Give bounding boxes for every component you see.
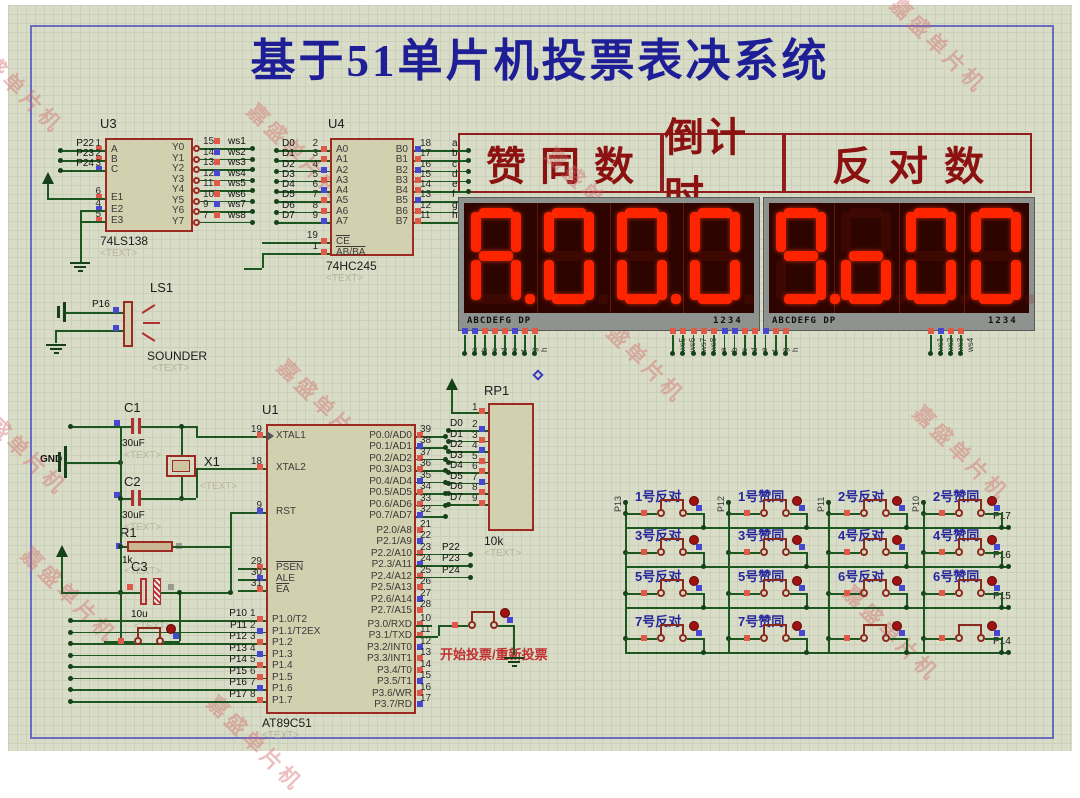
- pin-square[interactable]: [127, 584, 133, 590]
- pin-square[interactable]: [214, 159, 220, 165]
- push-button[interactable]: [958, 624, 982, 634]
- wire: [141, 426, 196, 428]
- pin-number: 1: [300, 241, 318, 253]
- pin-square[interactable]: [479, 500, 485, 506]
- button-contact-icon: [782, 548, 790, 556]
- display-pin-label: h: [791, 348, 800, 352]
- pin-square[interactable]: [670, 328, 676, 334]
- button-contact-icon: [882, 548, 890, 556]
- wire: [828, 638, 844, 640]
- junction-dot: [701, 525, 706, 530]
- seven-seg-segment-f: [690, 212, 700, 252]
- junction-dot: [250, 178, 255, 183]
- pin-square[interactable]: [696, 585, 702, 591]
- pin-square[interactable]: [257, 628, 263, 634]
- pin-name: P1.2: [272, 637, 293, 649]
- wire: [985, 552, 1001, 554]
- seven-seg-segment-d: [784, 294, 818, 304]
- push-button[interactable]: [958, 499, 982, 509]
- wire: [625, 607, 1010, 609]
- wire: [55, 330, 57, 343]
- junction-dot: [670, 351, 675, 356]
- seven-seg-segment-d: [479, 294, 513, 304]
- seven-seg-segment-d: [698, 294, 732, 304]
- digit-separator: [537, 203, 538, 313]
- digit-separator: [610, 203, 611, 313]
- junction-dot: [468, 552, 473, 557]
- junction-dot: [826, 500, 831, 505]
- button-contact-icon: [860, 509, 868, 517]
- wire: [850, 513, 860, 515]
- wire: [728, 513, 744, 515]
- ground-icon: [508, 661, 520, 663]
- button-contact-icon: [977, 548, 985, 556]
- pin-name: XTAL1: [276, 430, 306, 442]
- push-button[interactable]: [660, 624, 684, 634]
- sounder-text: <TEXT>: [152, 363, 189, 375]
- pin-square[interactable]: [479, 447, 485, 453]
- pin-square[interactable]: [214, 138, 220, 144]
- pin-square[interactable]: [994, 630, 1000, 636]
- junction-dot: [274, 148, 279, 153]
- pin-name: C: [111, 164, 118, 176]
- seven-seg-segment-g: [979, 251, 1013, 261]
- pin-square[interactable]: [214, 170, 220, 176]
- pin-square[interactable]: [321, 177, 327, 183]
- seven-seg-segment-g: [479, 251, 513, 261]
- seven-seg-segment-b: [881, 212, 891, 252]
- pin-square[interactable]: [522, 328, 528, 334]
- pin-square[interactable]: [994, 544, 1000, 550]
- junction-dot: [999, 650, 1004, 655]
- push-button[interactable]: [763, 499, 787, 509]
- pin-number: 5: [250, 654, 256, 666]
- pin-square[interactable]: [113, 307, 119, 313]
- wire: [625, 652, 1010, 654]
- chip-text-rp1: <TEXT>: [484, 548, 521, 560]
- invert-bubble-icon: [193, 166, 200, 173]
- ground-icon: [74, 266, 86, 268]
- pin-square[interactable]: [507, 617, 513, 623]
- keypad-col-label: P12: [716, 496, 726, 512]
- button-contact-icon: [657, 634, 665, 642]
- junction-dot: [958, 351, 963, 356]
- wire: [828, 552, 844, 554]
- push-button[interactable]: [863, 538, 887, 548]
- junction-dot: [250, 167, 255, 172]
- wire: [625, 593, 641, 595]
- push-button[interactable]: [763, 579, 787, 589]
- display-legend: 1234: [713, 315, 743, 327]
- junction-dot: [250, 209, 255, 214]
- button-contact-icon: [760, 548, 768, 556]
- wire: [625, 552, 641, 554]
- pin-square[interactable]: [752, 328, 758, 334]
- push-button[interactable]: [863, 579, 887, 589]
- pin-name: P2.1/A9: [340, 536, 412, 548]
- pin-square[interactable]: [696, 544, 702, 550]
- pin-square[interactable]: [691, 328, 697, 334]
- pin-square[interactable]: [257, 586, 263, 592]
- wire: [80, 210, 82, 262]
- pin-name: P0.4/AD4: [340, 476, 412, 488]
- wire-label: D7: [450, 492, 463, 504]
- wire: [890, 513, 906, 515]
- junction-dot: [58, 148, 63, 153]
- pin-square[interactable]: [899, 585, 905, 591]
- wire: [161, 592, 230, 594]
- wire: [790, 593, 806, 595]
- pin-square[interactable]: [173, 633, 179, 639]
- wire: [196, 468, 198, 498]
- junction-dot: [68, 699, 73, 704]
- wire: [647, 593, 657, 595]
- wire: [230, 512, 232, 592]
- pin-square[interactable]: [257, 685, 263, 691]
- pin-square[interactable]: [214, 201, 220, 207]
- wire: [828, 513, 844, 515]
- pin-name: P2.4/A12: [340, 571, 412, 583]
- pin-square[interactable]: [462, 328, 468, 334]
- seven-seg-segment-b: [946, 212, 956, 252]
- junction-dot: [466, 179, 471, 184]
- wire: [728, 638, 744, 640]
- wire: [173, 546, 230, 548]
- chip-rp1[interactable]: [488, 403, 534, 531]
- pin-square[interactable]: [994, 585, 1000, 591]
- pin-square[interactable]: [257, 508, 263, 514]
- pin-square[interactable]: [257, 432, 263, 438]
- seven-seg-segment-f: [971, 212, 981, 252]
- button-contact-icon: [977, 589, 985, 597]
- junction-dot: [711, 351, 716, 356]
- wire: [985, 593, 1001, 595]
- pin-square[interactable]: [257, 697, 263, 703]
- wire: [80, 221, 105, 223]
- battery-bar-icon: [57, 306, 60, 318]
- crystal-ref: X1: [204, 456, 220, 468]
- pin-square[interactable]: [938, 328, 944, 334]
- wire-label: h: [452, 210, 458, 222]
- push-button[interactable]: [660, 538, 684, 548]
- wire-label: P10: [205, 608, 247, 620]
- wire: [923, 552, 939, 554]
- pin-square[interactable]: [214, 149, 220, 155]
- pin-square[interactable]: [321, 167, 327, 173]
- junction-dot: [58, 168, 63, 173]
- pin-name: P2.0/A8: [340, 525, 412, 537]
- pin-name: AB/BA: [336, 247, 365, 259]
- chip-part-u3: 74LS138: [100, 235, 148, 247]
- pin-square[interactable]: [711, 328, 717, 334]
- seven-seg-segment-c: [511, 260, 521, 300]
- pin-square[interactable]: [321, 146, 327, 152]
- pin-square[interactable]: [321, 238, 327, 244]
- pin-square[interactable]: [113, 325, 119, 331]
- keypad-col-label: P11: [816, 497, 826, 512]
- seven-seg-segment-a: [784, 208, 818, 218]
- junction-dot: [250, 188, 255, 193]
- push-button[interactable]: [763, 538, 787, 548]
- pin-square[interactable]: [168, 584, 174, 590]
- pin-square[interactable]: [763, 328, 769, 334]
- pin-name: P1.3: [272, 649, 293, 661]
- pin-square[interactable]: [257, 651, 263, 657]
- wire: [61, 557, 63, 592]
- pin-square[interactable]: [502, 328, 508, 334]
- junction-dot: [948, 351, 953, 356]
- pin-name: E1: [111, 192, 123, 204]
- pin-square[interactable]: [994, 505, 1000, 511]
- seven-seg-segment-b: [511, 212, 521, 252]
- pin-square[interactable]: [899, 544, 905, 550]
- button-contact-icon: [860, 548, 868, 556]
- pin-square[interactable]: [680, 328, 686, 334]
- pin-square[interactable]: [479, 489, 485, 495]
- ground-icon: [46, 344, 66, 346]
- seven-seg-segment-c: [730, 260, 740, 300]
- wire-label: P22: [442, 542, 460, 554]
- wire: [61, 592, 120, 594]
- chip-ref-u3: U3: [100, 118, 117, 130]
- wire: [200, 222, 252, 224]
- origin-marker-icon: [532, 369, 543, 380]
- push-button[interactable]: [863, 624, 887, 634]
- push-button[interactable]: [863, 499, 887, 509]
- pin-square[interactable]: [479, 458, 485, 464]
- button-contact-icon: [679, 509, 687, 517]
- pin-square[interactable]: [479, 408, 485, 414]
- push-button[interactable]: [660, 579, 684, 589]
- wire: [262, 242, 330, 244]
- pin-square[interactable]: [958, 328, 964, 334]
- pin-name: P0.6/AD6: [340, 499, 412, 511]
- pin-square[interactable]: [732, 328, 738, 334]
- pin-square[interactable]: [742, 328, 748, 334]
- pin-square[interactable]: [773, 328, 779, 334]
- junction-dot: [701, 351, 706, 356]
- pin-name: P3.4/T0: [340, 665, 412, 677]
- wire: [513, 625, 515, 655]
- pin-square[interactable]: [415, 218, 421, 224]
- pin-square[interactable]: [482, 328, 488, 334]
- wire: [104, 641, 118, 643]
- button-contact-icon: [882, 509, 890, 517]
- pin-square[interactable]: [722, 328, 728, 334]
- header-countdown: 倒计时: [662, 133, 784, 193]
- junction-dot: [250, 199, 255, 204]
- junction-dot: [118, 496, 123, 501]
- wire: [850, 638, 860, 640]
- speaker-wave-icon: [142, 304, 156, 314]
- pin-square[interactable]: [899, 630, 905, 636]
- pin-square[interactable]: [321, 208, 327, 214]
- pin-name: P0.7/AD7: [340, 510, 412, 522]
- push-button[interactable]: [958, 538, 982, 548]
- pin-square[interactable]: [417, 701, 423, 707]
- seven-seg-segment-e: [471, 260, 481, 300]
- pin-square[interactable]: [479, 479, 485, 485]
- junction-dot: [68, 676, 73, 681]
- pin-square[interactable]: [532, 328, 538, 334]
- pin-number: 11: [420, 210, 430, 222]
- pin-square[interactable]: [899, 505, 905, 511]
- junction-dot: [904, 564, 909, 569]
- junction-dot: [938, 351, 943, 356]
- junction-dot: [443, 514, 448, 519]
- button-contact-icon: [955, 509, 963, 517]
- junction-dot: [250, 157, 255, 162]
- junction-dot: [58, 158, 63, 163]
- junction-dot: [68, 687, 73, 692]
- junction-dot: [999, 525, 1004, 530]
- seven-seg-segment-c: [1011, 260, 1021, 300]
- seven-seg-segment-e: [690, 260, 700, 300]
- junction-dot: [179, 424, 184, 429]
- pin-square[interactable]: [696, 505, 702, 511]
- pin-square[interactable]: [321, 156, 327, 162]
- pin-square[interactable]: [479, 437, 485, 443]
- power-arrow-icon: [446, 378, 458, 390]
- pin-square[interactable]: [928, 328, 934, 334]
- wire: [750, 593, 760, 595]
- seven-seg-dp: [960, 294, 970, 304]
- pin-name: P0.5/AD5: [340, 487, 412, 499]
- wire: [58, 170, 105, 172]
- seven-seg-segment-f: [906, 212, 916, 252]
- junction-dot: [482, 351, 487, 356]
- pin-square[interactable]: [214, 212, 220, 218]
- junction-dot: [904, 650, 909, 655]
- pin-square[interactable]: [512, 328, 518, 334]
- pin-square[interactable]: [799, 630, 805, 636]
- pin-square[interactable]: [321, 218, 327, 224]
- resistor-r1[interactable]: [127, 541, 173, 552]
- pin-name: P1.5: [272, 672, 293, 684]
- push-button[interactable]: [763, 624, 787, 634]
- wire: [196, 436, 230, 438]
- pin-square[interactable]: [492, 328, 498, 334]
- pin-square[interactable]: [321, 249, 327, 255]
- seven-seg-segment-b: [816, 212, 826, 252]
- battery-bar-icon: [58, 452, 61, 472]
- push-button[interactable]: [660, 499, 684, 509]
- pin-square[interactable]: [701, 328, 707, 334]
- pin-square[interactable]: [479, 426, 485, 432]
- pin-name: P3.2/INT0: [340, 642, 412, 654]
- button-contact-icon: [679, 634, 687, 642]
- seven-seg-dp: [895, 294, 905, 304]
- pin-square[interactable]: [799, 585, 805, 591]
- seven-seg-segment-c: [946, 260, 956, 300]
- pin-name: P3.5/T1: [340, 676, 412, 688]
- junction-dot: [466, 148, 471, 153]
- button-contact-icon: [882, 634, 890, 642]
- pin-square[interactable]: [948, 328, 954, 334]
- wire: [625, 500, 627, 652]
- push-button[interactable]: [137, 627, 161, 637]
- pin-name: P2.3/A11: [340, 559, 412, 571]
- pin-square[interactable]: [799, 544, 805, 550]
- wire-label: P24: [64, 158, 94, 170]
- pin-square[interactable]: [257, 464, 263, 470]
- schematic-stage: 基于51单片机投票表决系统 赞同数 倒计时 反对数 U3 74LS138 <TE…: [0, 0, 1080, 756]
- junction-dot: [921, 500, 926, 505]
- speaker-body-icon: [123, 301, 133, 347]
- invert-bubble-icon: [193, 156, 200, 163]
- pin-square[interactable]: [417, 512, 423, 518]
- pin-square[interactable]: [479, 468, 485, 474]
- junction-dot: [274, 220, 279, 225]
- wire: [196, 468, 230, 470]
- junction-dot: [999, 564, 1004, 569]
- button-contact-icon: [760, 634, 768, 642]
- pin-square[interactable]: [799, 505, 805, 511]
- pin-square[interactable]: [214, 191, 220, 197]
- wire: [181, 426, 183, 455]
- pin-name: XTAL2: [276, 462, 306, 474]
- power-arrow-icon: [42, 172, 54, 184]
- push-button[interactable]: [471, 611, 495, 621]
- button-contact-icon: [882, 589, 890, 597]
- wire: [750, 552, 760, 554]
- chip-ref-u4: U4: [328, 118, 345, 130]
- junction-dot: [763, 351, 768, 356]
- pin-square[interactable]: [257, 616, 263, 622]
- junction-dot: [623, 500, 628, 505]
- junction-dot: [1006, 525, 1011, 530]
- junction-dot: [468, 575, 473, 580]
- wire-label: D7: [282, 210, 295, 222]
- display-pin-label: ws4: [966, 338, 975, 352]
- junction-dot: [177, 590, 182, 595]
- pin-square[interactable]: [321, 197, 327, 203]
- pin-square[interactable]: [214, 180, 220, 186]
- wire: [923, 593, 939, 595]
- pin-name: EA: [276, 584, 289, 596]
- wire-label: P16: [205, 677, 247, 689]
- wire: [890, 552, 906, 554]
- speaker-wave-icon: [142, 332, 156, 342]
- seven-seg-segment-a: [479, 208, 513, 218]
- pin-square[interactable]: [783, 328, 789, 334]
- pin-square[interactable]: [257, 662, 263, 668]
- seven-seg-dp: [1025, 294, 1035, 304]
- wire: [728, 593, 744, 595]
- seven-seg-segment-g: [914, 251, 948, 261]
- pin-square[interactable]: [321, 187, 327, 193]
- button-contact-icon: [955, 548, 963, 556]
- seven-seg-segment-a: [698, 208, 732, 218]
- crystal-text: <TEXT>: [200, 481, 237, 493]
- pin-square[interactable]: [257, 639, 263, 645]
- seven-seg-segment-e: [776, 260, 786, 300]
- wire: [790, 638, 806, 640]
- pin-square[interactable]: [257, 674, 263, 680]
- push-button[interactable]: [958, 579, 982, 589]
- pin-square[interactable]: [472, 328, 478, 334]
- digit-separator: [683, 203, 684, 313]
- pin-number: 1: [250, 608, 256, 620]
- seven-seg-segment-c: [584, 260, 594, 300]
- wire: [179, 592, 181, 641]
- wire: [945, 638, 955, 640]
- wire: [945, 513, 955, 515]
- wire-label: P11: [205, 620, 247, 632]
- invert-bubble-icon: [193, 177, 200, 184]
- ground-icon: [54, 352, 59, 354]
- pin-square[interactable]: [696, 630, 702, 636]
